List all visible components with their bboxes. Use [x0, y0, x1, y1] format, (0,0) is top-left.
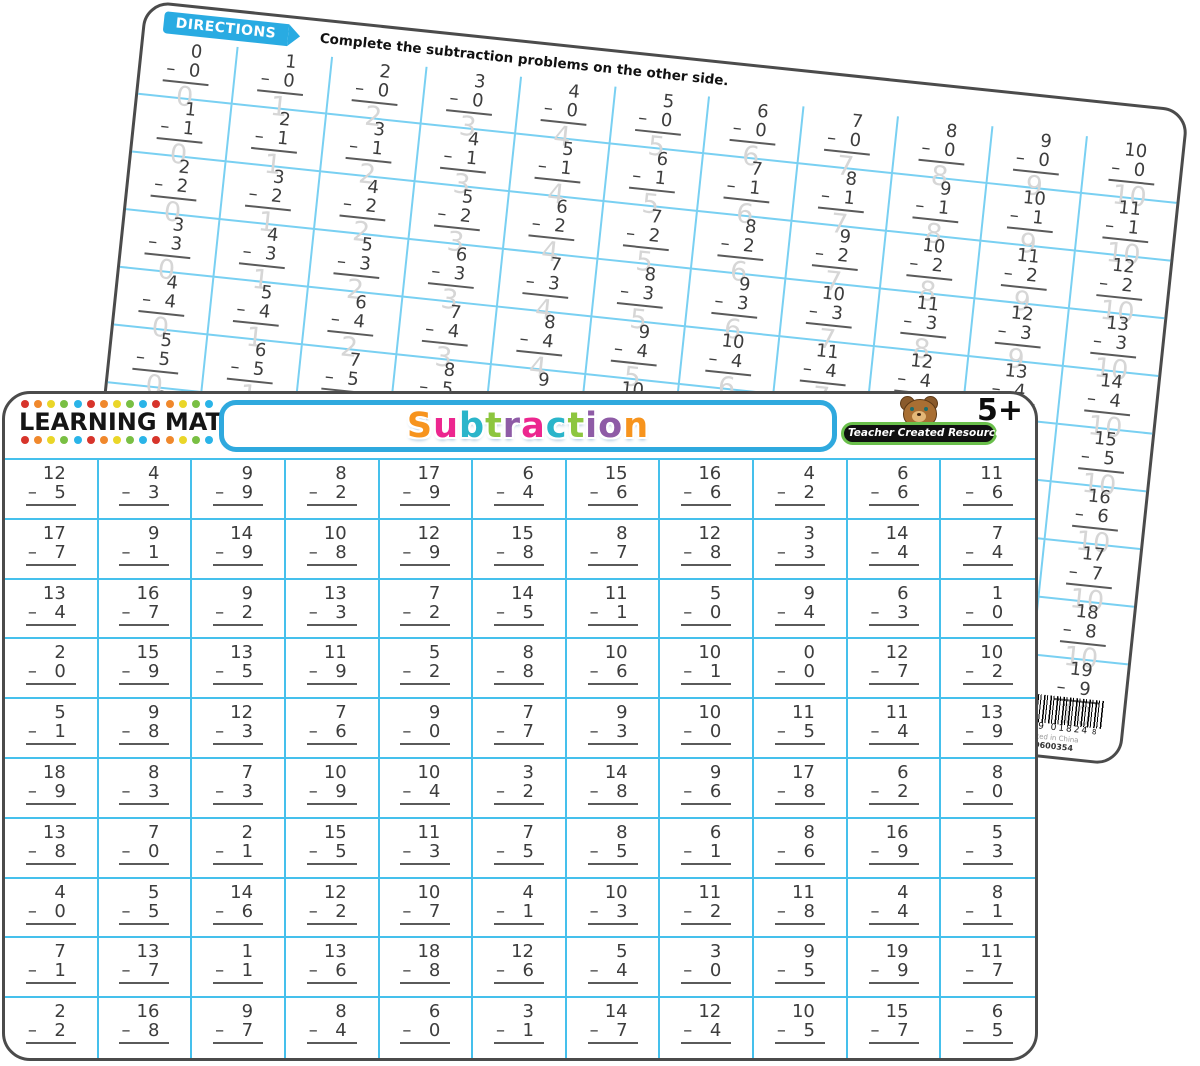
- subtraction-problem-cell: 4–0: [5, 879, 99, 939]
- subtrahend-row: –0: [1013, 148, 1061, 172]
- subtrahend: 1: [559, 159, 572, 178]
- subtraction-problem-cell: 17–7: [5, 520, 99, 580]
- subtraction-problem-cell: 9–2: [192, 580, 286, 640]
- subtrahend-row: –1: [629, 166, 677, 190]
- minus-icon: –: [236, 300, 247, 319]
- subtrahend-row: –3: [119, 483, 169, 502]
- subtrahend: 1: [748, 179, 761, 198]
- minus-icon: –: [820, 187, 831, 206]
- subtraction-problem: 9–4: [775, 585, 825, 626]
- subtraction-problem-cell: 11–5: [754, 699, 848, 759]
- minuend: 7: [213, 764, 263, 782]
- subtraction-problem-cell: 0–00: [138, 37, 238, 105]
- answer-line: [588, 624, 638, 626]
- subtrahend-row: –2: [869, 782, 919, 801]
- subtrahend-row: –6: [588, 483, 638, 502]
- subtrahend: 1: [276, 130, 289, 149]
- minuend: 12: [494, 943, 544, 961]
- minuend: 11: [775, 884, 825, 902]
- minus-icon: –: [309, 663, 318, 681]
- subtraction-problem: 15–8: [494, 525, 544, 566]
- minus-icon: –: [330, 310, 341, 329]
- minuend: 14: [213, 884, 263, 902]
- subtraction-problem-cell: 10–010: [1082, 136, 1182, 204]
- color-dot-icon: [74, 436, 82, 444]
- minuend: 13: [119, 943, 169, 961]
- subtrahend-row: –4: [611, 339, 659, 363]
- subtrahend: 5: [803, 1022, 814, 1040]
- subtrahend-row: –4: [869, 543, 919, 562]
- subtraction-problem-cell: 12–9: [380, 520, 474, 580]
- subtrahend-row: –7: [869, 662, 919, 681]
- subtraction-problem: 10–6: [588, 644, 638, 685]
- subtraction-problem-cell: 16–7: [99, 580, 193, 640]
- answer-line: [400, 982, 450, 984]
- subtrahend-row: –3: [523, 271, 571, 295]
- answer-line: [681, 683, 731, 685]
- subtrahend-row: –4: [494, 483, 544, 502]
- answer-line: [400, 923, 450, 925]
- minus-icon: –: [683, 903, 692, 921]
- subtrahend: 0: [710, 604, 721, 622]
- subtraction-problem: 10–0: [681, 704, 731, 745]
- subtrahend: 6: [616, 663, 627, 681]
- subtraction-problem: 10–7: [400, 884, 450, 925]
- subtrahend: 0: [54, 663, 65, 681]
- subtraction-problem: 11–9: [307, 644, 357, 685]
- minus-icon: –: [590, 604, 599, 622]
- subtrahend-row: –5: [213, 662, 263, 681]
- answer-line: [307, 504, 357, 506]
- subtrahend: 5: [523, 604, 534, 622]
- subtraction-problem-cell: 14–7: [567, 998, 661, 1058]
- answer-line: [681, 564, 731, 566]
- subtrahend-row: –7: [119, 961, 169, 980]
- subtrahend-row: –0: [1108, 158, 1156, 182]
- minus-icon: –: [496, 544, 505, 562]
- subtrahend: 6: [710, 484, 721, 502]
- subtraction-problem: 7–1: [26, 943, 76, 984]
- subtraction-problem: 8–4: [516, 311, 566, 357]
- minuend: 10: [963, 644, 1013, 662]
- answer-line: [588, 863, 638, 865]
- subtraction-problem: 8–1: [963, 884, 1013, 925]
- subtraction-problem: 11–2: [1000, 245, 1050, 291]
- subtrahend-row: –8: [119, 722, 169, 741]
- subtraction-problem: 4–4: [139, 271, 189, 317]
- minuend: 17: [400, 465, 450, 483]
- subtrahend: 0: [471, 92, 484, 111]
- subtraction-problem-cell: 6–1: [660, 819, 754, 879]
- subtraction-problem-cell: 7–3: [192, 759, 286, 819]
- minus-icon: –: [215, 604, 224, 622]
- brand-block: LEARNING MAT: [19, 400, 215, 444]
- subtraction-problem: 7–5: [494, 824, 544, 865]
- subtraction-problem: 10–1: [1006, 188, 1056, 234]
- subtraction-problem-cell: 3–2: [473, 759, 567, 819]
- subtrahend-row: –3: [617, 281, 665, 305]
- subtrahend: 6: [897, 484, 908, 502]
- subtrahend-row: –8: [26, 842, 76, 861]
- subtrahend-row: –2: [151, 174, 199, 198]
- minuend: 13: [26, 824, 76, 842]
- subtraction-problem: 2–1: [251, 108, 301, 154]
- subtrahend: 1: [465, 149, 478, 168]
- subtrahend-row: –0: [447, 88, 495, 112]
- subtraction-problem: 13–5: [213, 644, 263, 685]
- subtrahend: 2: [931, 257, 944, 276]
- subtraction-problem-cell: 6–33: [403, 240, 503, 308]
- subtrahend-row: –6: [775, 842, 825, 861]
- subtrahend-row: –7: [588, 543, 638, 562]
- answer-line: [588, 743, 638, 745]
- minus-icon: –: [871, 604, 880, 622]
- subtraction-problem-cell: 10–2: [941, 639, 1035, 699]
- subtraction-problem: 6–0: [729, 100, 779, 146]
- answer-line: [681, 982, 731, 984]
- subtraction-problem: 15–6: [588, 465, 638, 506]
- subtrahend-row: –6: [307, 961, 357, 980]
- subtrahend: 6: [1096, 507, 1109, 526]
- subtraction-problem: 7–6: [307, 704, 357, 745]
- subtrahend-row: –0: [681, 961, 731, 980]
- minus-icon: –: [726, 177, 737, 196]
- answer-line: [494, 863, 544, 865]
- subtraction-problem: 1–1: [157, 98, 207, 144]
- subtraction-problem: 4–0: [26, 884, 76, 925]
- subtrahend: 2: [710, 903, 721, 921]
- subtraction-problem-cell: 15–6: [567, 460, 661, 520]
- subtrahend-row: –1: [724, 176, 772, 200]
- subtraction-problem: 5–3: [963, 824, 1013, 865]
- subtrahend: 2: [1025, 267, 1038, 286]
- answer-line: [869, 863, 919, 865]
- minus-icon: –: [590, 783, 599, 801]
- minus-icon: –: [683, 544, 692, 562]
- subtraction-problem-cell: 3–03: [421, 67, 521, 135]
- minus-icon: –: [1003, 264, 1014, 283]
- subtrahend-row: –2: [775, 483, 825, 502]
- subtraction-problem: 9–7: [213, 1003, 263, 1044]
- subtraction-problem-cell: 15–5: [286, 819, 380, 879]
- subtrahend: 2: [803, 484, 814, 502]
- minus-icon: –: [153, 175, 164, 194]
- answer-line: [775, 803, 825, 805]
- subtrahend: 3: [242, 723, 253, 741]
- subtrahend: 3: [616, 723, 627, 741]
- subtrahend-row: –4: [422, 319, 470, 343]
- subtrahend: 5: [148, 903, 159, 921]
- subtrahend-row: –1: [494, 1021, 544, 1040]
- subtrahend-row: –7: [26, 543, 76, 562]
- minus-icon: –: [28, 604, 37, 622]
- subtraction-problem-cell: 11–2: [660, 879, 754, 939]
- subtrahend: 3: [547, 275, 560, 294]
- minus-icon: –: [519, 330, 530, 349]
- subtraction-problem: 5–3: [334, 233, 384, 279]
- subtrahend-row: –0: [681, 722, 731, 741]
- answer-line: [775, 743, 825, 745]
- subtrahend: 0: [660, 112, 673, 131]
- minuend: 3: [494, 764, 544, 782]
- subtraction-problem: 9–0: [400, 704, 450, 745]
- subtrahend-row: –0: [775, 662, 825, 681]
- subtrahend: 5: [346, 370, 359, 389]
- subtraction-problem-cell: 11–6: [941, 460, 1035, 520]
- answer-line: [307, 564, 357, 566]
- subtrahend-row: –2: [529, 214, 577, 238]
- minuend: 14: [494, 585, 544, 603]
- subtrahend: 8: [148, 1022, 159, 1040]
- front-problem-grid: 12–54–39–98–217–96–415–616–64–26–611–617…: [5, 458, 1035, 1058]
- minus-icon: –: [997, 322, 1008, 341]
- subtraction-problem: 7–0: [119, 824, 169, 865]
- answer-line: [588, 683, 638, 685]
- subtrahend-row: –6: [963, 483, 1013, 502]
- subtraction-problem-cell: 4–31: [214, 220, 314, 288]
- answer-line: [213, 982, 263, 984]
- minus-icon: –: [965, 544, 974, 562]
- minuend: 5: [681, 585, 731, 603]
- subtraction-problem: 6–1: [681, 824, 731, 865]
- subtrahend-row: –7: [494, 722, 544, 741]
- subtraction-problem-cell: 6–5: [941, 998, 1035, 1058]
- subtraction-problem: 14–6: [213, 884, 263, 925]
- subtrahend-row: –0: [26, 902, 76, 921]
- subtrahend: 7: [1090, 565, 1103, 584]
- subtrahend-row: –3: [995, 321, 1043, 345]
- subtraction-problem: 9–2: [812, 225, 862, 271]
- color-dot-icon: [166, 400, 174, 408]
- subtrahend: 0: [943, 141, 956, 160]
- subtrahend-row: –9: [213, 483, 263, 502]
- minus-icon: –: [309, 843, 318, 861]
- minuend: 18: [400, 943, 450, 961]
- minuend: 12: [681, 525, 731, 543]
- subtraction-problem: 12–6: [494, 943, 544, 984]
- subtraction-problem: 18–9: [26, 764, 76, 805]
- color-dot-icon: [126, 400, 134, 408]
- color-dot-icon: [87, 400, 95, 408]
- subtraction-problem: 3–1: [346, 118, 396, 164]
- subtraction-problem: 12–3: [213, 704, 263, 745]
- subtraction-problem-cell: 11–4: [848, 699, 942, 759]
- subtrahend: 1: [54, 962, 65, 980]
- minus-icon: –: [402, 604, 411, 622]
- subtraction-banner: Subtraction: [219, 400, 837, 452]
- minus-icon: –: [590, 843, 599, 861]
- barcode-check-digit: 8: [1092, 728, 1097, 736]
- subtrahend-row: –3: [428, 261, 476, 285]
- subtrahend: 8: [616, 783, 627, 801]
- minus-icon: –: [309, 604, 318, 622]
- subtrahend: 0: [565, 102, 578, 121]
- subtrahend-row: –2: [718, 233, 766, 257]
- subtraction-problem-cell: 12–7: [848, 639, 942, 699]
- color-dot-icon: [100, 400, 108, 408]
- answer-line: [119, 982, 169, 984]
- subtraction-problem-cell: 9–09: [988, 126, 1088, 194]
- subtraction-problem: 4–1: [494, 884, 544, 925]
- minus-icon: –: [496, 484, 505, 502]
- minus-icon: –: [732, 119, 743, 138]
- subtraction-problem: 11–3: [900, 293, 950, 339]
- minuend: 9: [775, 943, 825, 961]
- subtraction-problem-cell: 17–9: [380, 460, 474, 520]
- color-dot-icon: [139, 436, 147, 444]
- subtrahend: 3: [736, 295, 749, 314]
- color-dot-icon: [47, 436, 55, 444]
- minuend: 13: [213, 644, 263, 662]
- subtraction-problem: 14–7: [588, 1003, 638, 1044]
- answer-line: [494, 982, 544, 984]
- subtrahend-row: –1: [213, 842, 263, 861]
- subtrahend-row: –8: [588, 782, 638, 801]
- subtraction-problem-cell: 15–7: [848, 998, 942, 1058]
- answer-line: [494, 683, 544, 685]
- subtrahend-row: –7: [400, 902, 450, 921]
- answer-line: [494, 803, 544, 805]
- subtrahend: 9: [897, 962, 908, 980]
- answer-line: [963, 683, 1013, 685]
- subtraction-problem-cell: 10–1: [660, 639, 754, 699]
- minus-icon: –: [871, 544, 880, 562]
- minus-icon: –: [121, 484, 130, 502]
- minus-icon: –: [402, 663, 411, 681]
- subtraction-problem: 6–4: [494, 465, 544, 506]
- subtrahend: 6: [242, 903, 253, 921]
- subtrahend-row: –1: [346, 136, 394, 160]
- minus-icon: –: [590, 903, 599, 921]
- minuend: 5: [26, 704, 76, 722]
- subtraction-problem-cell: 11–38: [875, 290, 975, 358]
- minus-icon: –: [683, 1022, 692, 1040]
- minus-icon: –: [683, 962, 692, 980]
- subtrahend-row: –1: [588, 603, 638, 622]
- subtrahend-row: –0: [163, 58, 211, 82]
- subtrahend: 8: [803, 903, 814, 921]
- answer-line: [775, 1042, 825, 1044]
- subtraction-problem: 11–1: [588, 585, 638, 626]
- color-dot-icon: [126, 436, 134, 444]
- subtrahend-row: –8: [494, 662, 544, 681]
- minus-icon: –: [590, 962, 599, 980]
- subtraction-problem-cell: 8–5: [567, 819, 661, 879]
- minuend: 11: [681, 884, 731, 902]
- subtraction-problem: 17–9: [400, 465, 450, 506]
- subtrahend-row: –4: [588, 961, 638, 980]
- subtrahend: 0: [148, 843, 159, 861]
- subtrahend-row: –8: [307, 543, 357, 562]
- subtraction-problem: 13–6: [307, 943, 357, 984]
- subtraction-problem: 4–1: [440, 128, 490, 174]
- subtrahend: 5: [803, 962, 814, 980]
- minus-icon: –: [826, 129, 837, 148]
- subtraction-problem-cell: 15–510: [1052, 425, 1152, 493]
- subtraction-problem: 8–3: [119, 764, 169, 805]
- minuend: 13: [307, 585, 357, 603]
- subtraction-problem-cell: 16–6: [660, 460, 754, 520]
- answer-line: [681, 504, 731, 506]
- subtrahend-row: –6: [213, 902, 263, 921]
- minus-icon: –: [121, 663, 130, 681]
- subtrahend: 8: [148, 723, 159, 741]
- subtraction-problem: 9–1: [912, 178, 962, 224]
- banner-letter: a: [521, 406, 546, 446]
- subtraction-problem-cell: 10–4: [380, 759, 474, 819]
- subtrahend: 5: [1102, 450, 1115, 469]
- subtraction-problem-cell: 3–21: [220, 162, 320, 230]
- minuend: 13: [26, 585, 76, 603]
- subtraction-problem: 6–3: [428, 243, 478, 289]
- subtrahend: 0: [54, 903, 65, 921]
- subtrahend: 0: [803, 663, 814, 681]
- subtraction-problem-cell: 3–1: [473, 998, 567, 1058]
- minuend: 10: [400, 884, 450, 902]
- subtraction-problem: 7–2: [623, 206, 673, 252]
- answer-line: [494, 743, 544, 745]
- subtrahend-row: –1: [252, 126, 300, 150]
- subtraction-problem: 3–0: [681, 943, 731, 984]
- subtrahend: 1: [654, 169, 667, 188]
- subtrahend: 7: [242, 1022, 253, 1040]
- subtrahend-row: –3: [775, 543, 825, 562]
- subtraction-problem-cell: 8–6: [754, 819, 848, 879]
- subtrahend-row: –1: [213, 961, 263, 980]
- minus-icon: –: [496, 903, 505, 921]
- subtraction-problem: 6–1: [629, 148, 679, 194]
- subtraction-problem-cell: 8–2: [286, 460, 380, 520]
- subtraction-problem-cell: 10–8: [286, 520, 380, 580]
- subtraction-problem: 5–2: [400, 644, 450, 685]
- minuend: 10: [588, 884, 638, 902]
- subtraction-problem: 10–2: [963, 644, 1013, 685]
- subtrahend: 1: [1127, 219, 1140, 238]
- subtrahend: 4: [523, 484, 534, 502]
- minus-icon: –: [496, 783, 505, 801]
- answer-line: [400, 863, 450, 865]
- subtraction-problem-cell: 18–9: [5, 759, 99, 819]
- minus-icon: –: [619, 282, 630, 301]
- minus-icon: –: [871, 783, 880, 801]
- subtraction-problem-cell: 4–40: [114, 268, 214, 336]
- minus-icon: –: [777, 663, 786, 681]
- answer-line: [119, 1042, 169, 1044]
- subtrahend: 7: [429, 903, 440, 921]
- minus-icon: –: [590, 663, 599, 681]
- subtraction-problem: 7–7: [494, 704, 544, 745]
- minus-icon: –: [625, 225, 636, 244]
- subtraction-problem: 13–7: [119, 943, 169, 984]
- minus-icon: –: [915, 197, 926, 216]
- minuend: 4: [26, 884, 76, 902]
- subtrahend: 7: [616, 1022, 627, 1040]
- minuend: 11: [869, 704, 919, 722]
- subtraction-problem: 12–2: [307, 884, 357, 925]
- minuend: 7: [494, 824, 544, 842]
- subtrahend: 2: [459, 207, 472, 226]
- subtraction-problem: 9–1: [119, 525, 169, 566]
- subtrahend-row: –4: [517, 329, 565, 353]
- subtrahend: 2: [836, 247, 849, 266]
- minus-icon: –: [965, 962, 974, 980]
- minuend: 0: [775, 644, 825, 662]
- minus-icon: –: [424, 320, 435, 339]
- subtrahend: 3: [925, 314, 938, 333]
- minuend: 7: [963, 525, 1013, 543]
- minus-icon: –: [683, 663, 692, 681]
- subtrahend: 4: [429, 783, 440, 801]
